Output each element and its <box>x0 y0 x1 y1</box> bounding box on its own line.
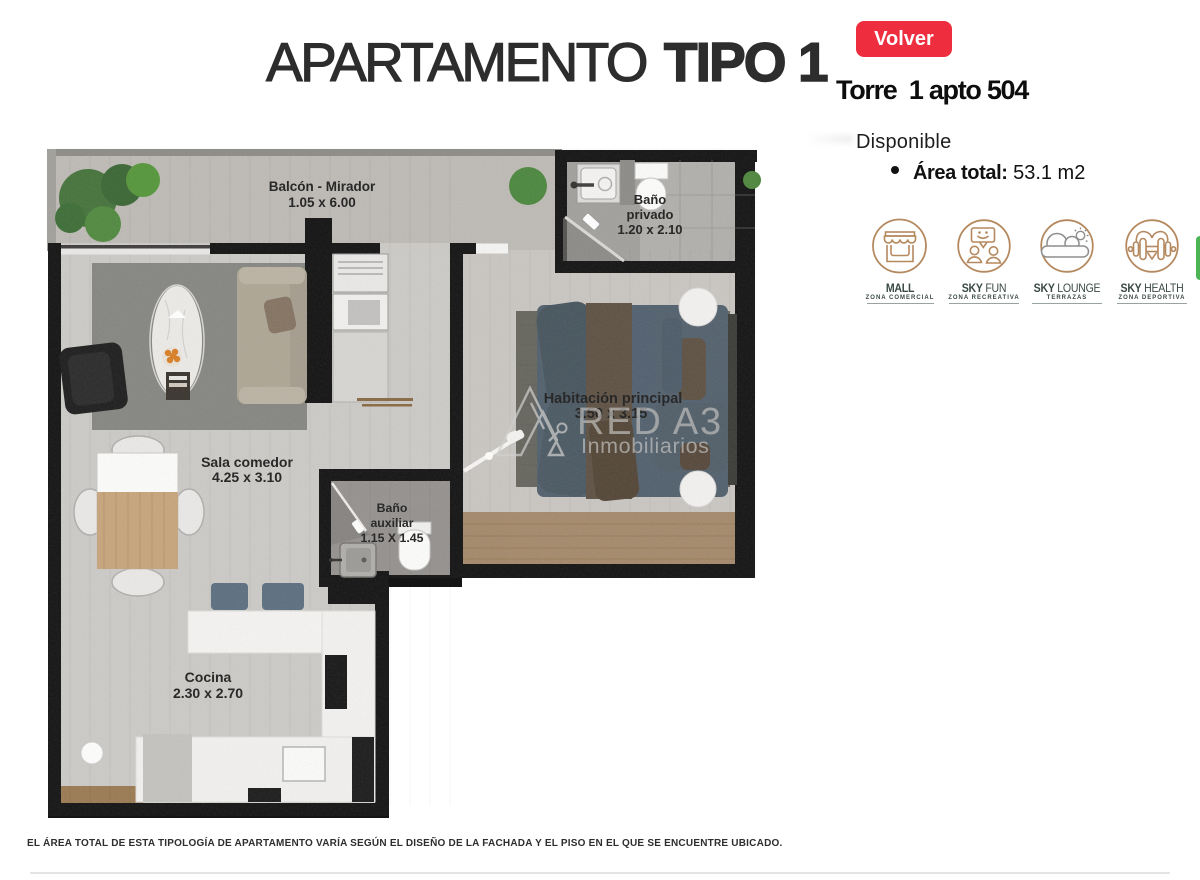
svg-text:Inmobiliarios: Inmobiliarios <box>581 434 710 458</box>
